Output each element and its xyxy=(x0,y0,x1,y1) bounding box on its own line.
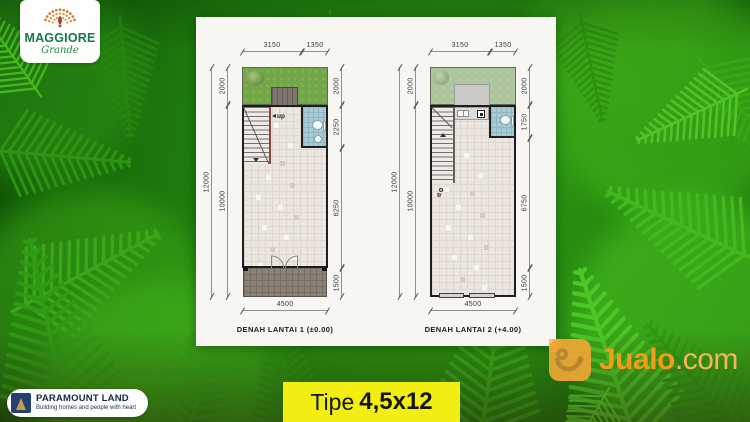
paramount-tagline: Building homes and people with heart xyxy=(36,405,136,412)
dimension-label: 1750 xyxy=(522,113,529,130)
dimension-line: 10000 xyxy=(415,105,416,297)
dimension-label: 1350 xyxy=(307,42,324,49)
dimension-line: 10000 xyxy=(227,105,228,297)
roof-garden xyxy=(430,67,516,105)
dimension-line: 1500 xyxy=(529,268,530,297)
dimension-line: 1750 xyxy=(529,105,530,138)
dimension-line: 3150 xyxy=(430,51,490,52)
toilet-icon xyxy=(312,120,323,130)
dimension-line: 2000 xyxy=(529,67,530,105)
dimension-label: 4500 xyxy=(277,301,294,308)
dimension-label: 2250 xyxy=(334,118,341,135)
dimension-line: 2000 xyxy=(415,67,416,105)
stair-label: up xyxy=(272,114,285,121)
bathroom xyxy=(301,107,326,148)
maggiore-name: MAGGIORE xyxy=(20,31,100,45)
dimension-line: 4500 xyxy=(430,310,516,311)
dimension-label: 12000 xyxy=(392,172,399,193)
stair-label: tr xyxy=(437,188,443,200)
dimension-line: 2250 xyxy=(341,105,342,148)
jualo-brand: Jualo xyxy=(599,343,675,376)
dimension-line: 12000 xyxy=(399,67,400,297)
dimension-label: 2000 xyxy=(334,78,341,95)
bathroom xyxy=(489,107,514,138)
floorplan-lantai-1: 3150 1350 12000 2000 10000 2000 2250 625… xyxy=(242,67,328,297)
floorplan-panel: 3150 1350 12000 2000 10000 2000 2250 625… xyxy=(196,17,556,346)
stair-diagonal xyxy=(243,107,269,164)
dimension-line: 6250 xyxy=(341,148,342,268)
entry-steps xyxy=(271,87,298,106)
toilet-tank-icon xyxy=(511,116,514,126)
dimension-line: 4500 xyxy=(242,310,328,311)
dimension-label: 2000 xyxy=(522,78,529,95)
type-badge: Tipe 4,5x12 xyxy=(283,382,460,422)
maggiore-subtitle: Grande xyxy=(20,45,100,56)
dimension-label: 1500 xyxy=(522,274,529,291)
stairs xyxy=(244,107,271,164)
dimension-line: 3150 xyxy=(242,51,302,52)
paramount-triangle-icon xyxy=(16,398,26,410)
jualo-smiley-icon xyxy=(549,339,591,381)
type-badge-value: 4,5x12 xyxy=(359,388,432,416)
dimension-label: 2000 xyxy=(220,78,227,95)
peacock-ornament-icon xyxy=(32,2,88,28)
double-door-icon xyxy=(271,255,298,268)
stair-arrow-icon xyxy=(440,133,446,137)
dimension-label: 6750 xyxy=(522,195,529,212)
stove-icon xyxy=(477,110,485,118)
dimension-line: 2000 xyxy=(341,67,342,105)
dimension-label: 12000 xyxy=(204,172,211,193)
paramount-name: PARAMOUNT LAND xyxy=(36,394,136,404)
dimension-label: 10000 xyxy=(408,191,415,212)
listing-image: 3150 1350 12000 2000 10000 2000 2250 625… xyxy=(0,0,750,422)
kitchen-sink-icon xyxy=(457,110,469,117)
dimension-label: 1500 xyxy=(334,274,341,291)
dimension-label: 3150 xyxy=(264,42,281,49)
dimension-label: 2000 xyxy=(408,78,415,95)
floor1-interior: up xyxy=(242,105,328,268)
dimension-label: 1350 xyxy=(495,42,512,49)
floor2-interior: tr xyxy=(430,105,516,297)
paramount-land-logo: PARAMOUNT LAND Building homes and people… xyxy=(7,389,148,417)
window xyxy=(439,293,464,298)
stairs xyxy=(432,107,455,183)
kitchen-counter xyxy=(452,107,489,120)
plan-caption: DENAH LANTAI 1 (±0.00) xyxy=(237,325,334,334)
toilet-icon xyxy=(500,115,511,125)
bush-icon xyxy=(433,70,449,85)
dimension-line: 6750 xyxy=(529,138,530,268)
dimension-line: 12000 xyxy=(211,67,212,297)
window xyxy=(469,293,495,298)
carport xyxy=(243,268,327,297)
wall-post xyxy=(243,266,248,271)
maggiore-logo: MAGGIORE Grande xyxy=(20,0,100,63)
front-garden xyxy=(242,67,328,105)
dimension-line: 1350 xyxy=(490,51,516,52)
stair-arrow-icon xyxy=(253,158,259,162)
dimension-label: 3150 xyxy=(452,42,469,49)
floorplan-lantai-2: 3150 1350 12000 2000 10000 2000 1750 675… xyxy=(430,67,516,297)
dimension-line: 2000 xyxy=(227,67,228,105)
dimension-line: 1500 xyxy=(341,268,342,297)
jualo-domain: .com xyxy=(675,343,738,376)
dimension-label: 10000 xyxy=(220,191,227,212)
wall-post xyxy=(322,266,327,271)
plan-caption: DENAH LANTAI 2 (+4.00) xyxy=(425,325,522,334)
dimension-line: 1350 xyxy=(302,51,328,52)
type-badge-prefix: Tipe xyxy=(310,389,354,416)
bush-icon xyxy=(246,70,264,86)
dimension-label: 4500 xyxy=(465,301,482,308)
sink-icon xyxy=(314,135,322,143)
stair-diagonal xyxy=(431,107,452,128)
dimension-label: 6250 xyxy=(334,200,341,217)
paramount-building-icon xyxy=(11,393,31,413)
toilet-tank-icon xyxy=(323,121,326,131)
jualo-watermark: Jualo.com xyxy=(549,339,738,381)
terrace xyxy=(454,84,490,106)
